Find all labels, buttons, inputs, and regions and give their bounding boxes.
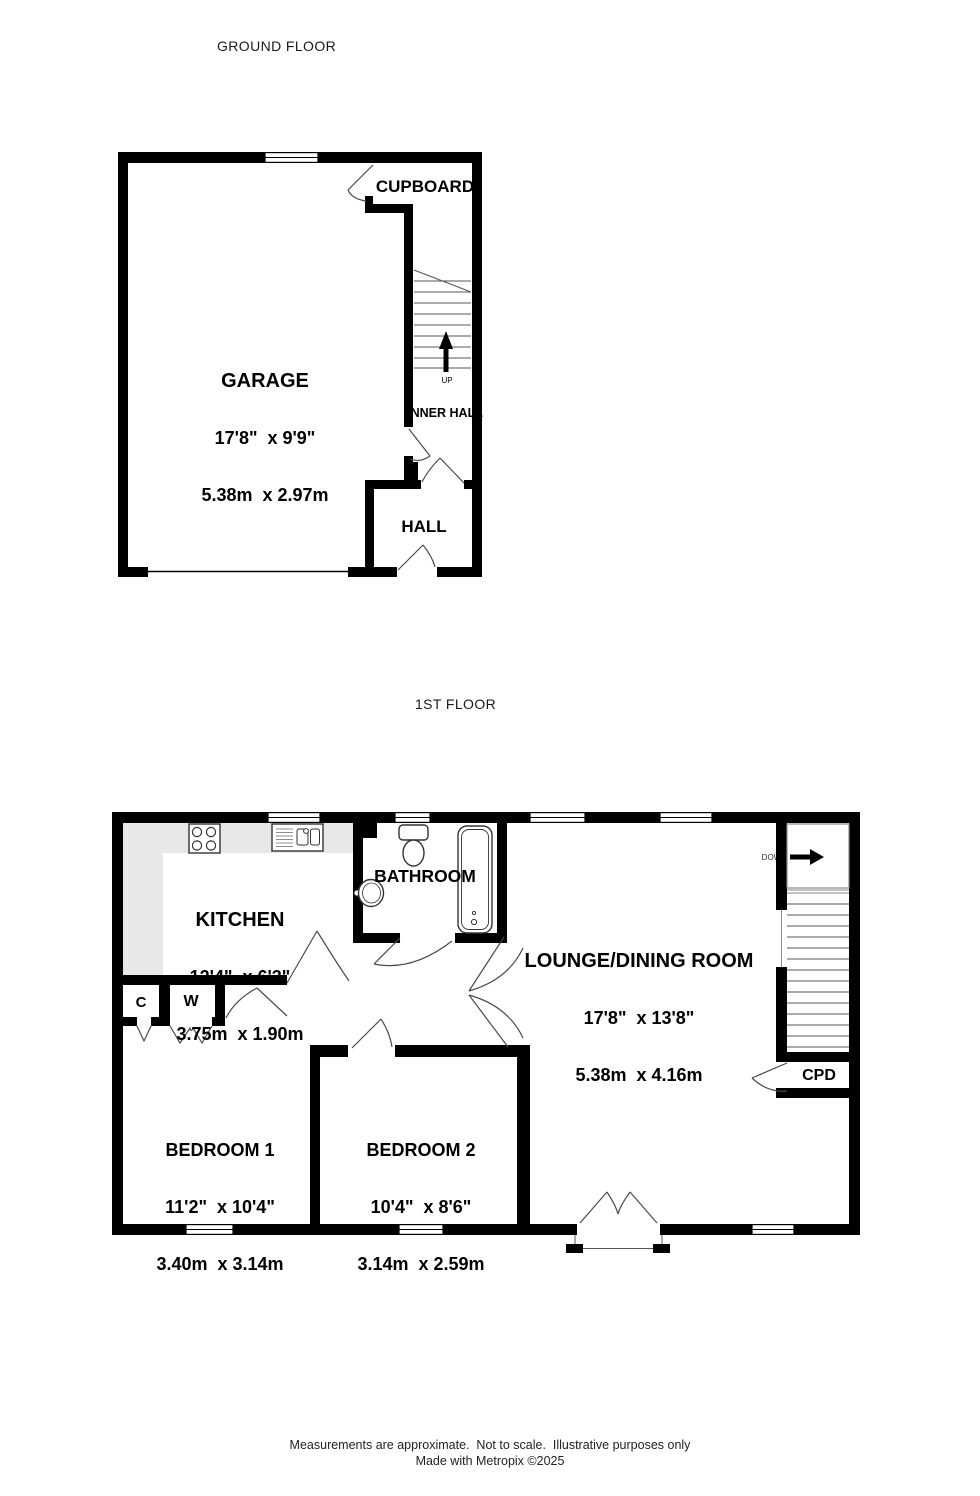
- down-arrow-icon: [790, 849, 824, 865]
- sink-icon: [272, 824, 323, 851]
- balcony: [566, 1235, 670, 1253]
- ground-floor-title: GROUND FLOOR: [217, 38, 336, 54]
- disclaimer-line1: Measurements are approximate. Not to sca…: [0, 1437, 980, 1453]
- bedroom1-name: BEDROOM 1: [156, 1140, 283, 1161]
- bedroom1-metric: 3.40m x 3.14m: [156, 1254, 283, 1275]
- closet-w-label: W: [183, 994, 198, 1010]
- cpd-label: CPD: [802, 1068, 836, 1084]
- garage-name: GARAGE: [201, 370, 328, 392]
- lounge-metric: 5.38m x 4.16m: [525, 1065, 754, 1086]
- disclaimer-line2: Made with Metropix ©2025: [0, 1453, 980, 1469]
- window-icon: [265, 153, 318, 163]
- bedroom2-imperial: 10'4" x 8'6": [357, 1197, 484, 1218]
- staircase-up: [414, 270, 471, 368]
- stairs-up-label: UP: [441, 377, 452, 385]
- bedroom1-imperial: 11'2" x 10'4": [156, 1197, 283, 1218]
- bathroom-label: BATHROOM: [374, 868, 476, 886]
- up-arrow-icon: [439, 331, 453, 372]
- hall-label: HALL: [401, 518, 446, 535]
- kitchen-metric: 3.75m x 1.90m: [176, 1024, 303, 1045]
- lounge-imperial: 17'8" x 13'8": [525, 1008, 754, 1029]
- cupboard-label: CUPBOARD: [376, 178, 474, 195]
- lounge-label: LOUNGE/DINING ROOM 17'8" x 13'8" 5.38m x…: [525, 914, 754, 1122]
- kitchen-imperial: 12'4" x 6'3": [176, 967, 303, 988]
- toilet-icon: [399, 825, 428, 866]
- floorplan-drawing: DOWN: [0, 0, 980, 1496]
- lounge-name: LOUNGE/DINING ROOM: [525, 950, 754, 972]
- bedroom2-name: BEDROOM 2: [357, 1140, 484, 1161]
- garage-imperial: 17'8" x 9'9": [201, 428, 328, 449]
- cupboard-walls: [365, 196, 418, 482]
- closet-c-label: C: [136, 995, 147, 1010]
- inner-hall-label: INNER HALL: [407, 407, 483, 420]
- kitchen-name: KITCHEN: [176, 909, 303, 931]
- garage-label: GARAGE 17'8" x 9'9" 5.38m x 2.97m: [201, 334, 328, 542]
- bedroom2-metric: 3.14m x 2.59m: [357, 1254, 484, 1275]
- bedroom1-label: BEDROOM 1 11'2" x 10'4" 3.40m x 3.14m: [156, 1104, 283, 1311]
- kitchen-label: KITCHEN 12'4" x 6'3" 3.75m x 1.90m: [176, 873, 303, 1081]
- bedroom2-label: BEDROOM 2 10'4" x 8'6" 3.14m x 2.59m: [357, 1104, 484, 1311]
- garage-metric: 5.38m x 2.97m: [201, 485, 328, 506]
- first-floor-title: 1ST FLOOR: [415, 696, 496, 712]
- floorplan-canvas: DOWN: [0, 0, 980, 1496]
- hob-icon: [189, 824, 220, 853]
